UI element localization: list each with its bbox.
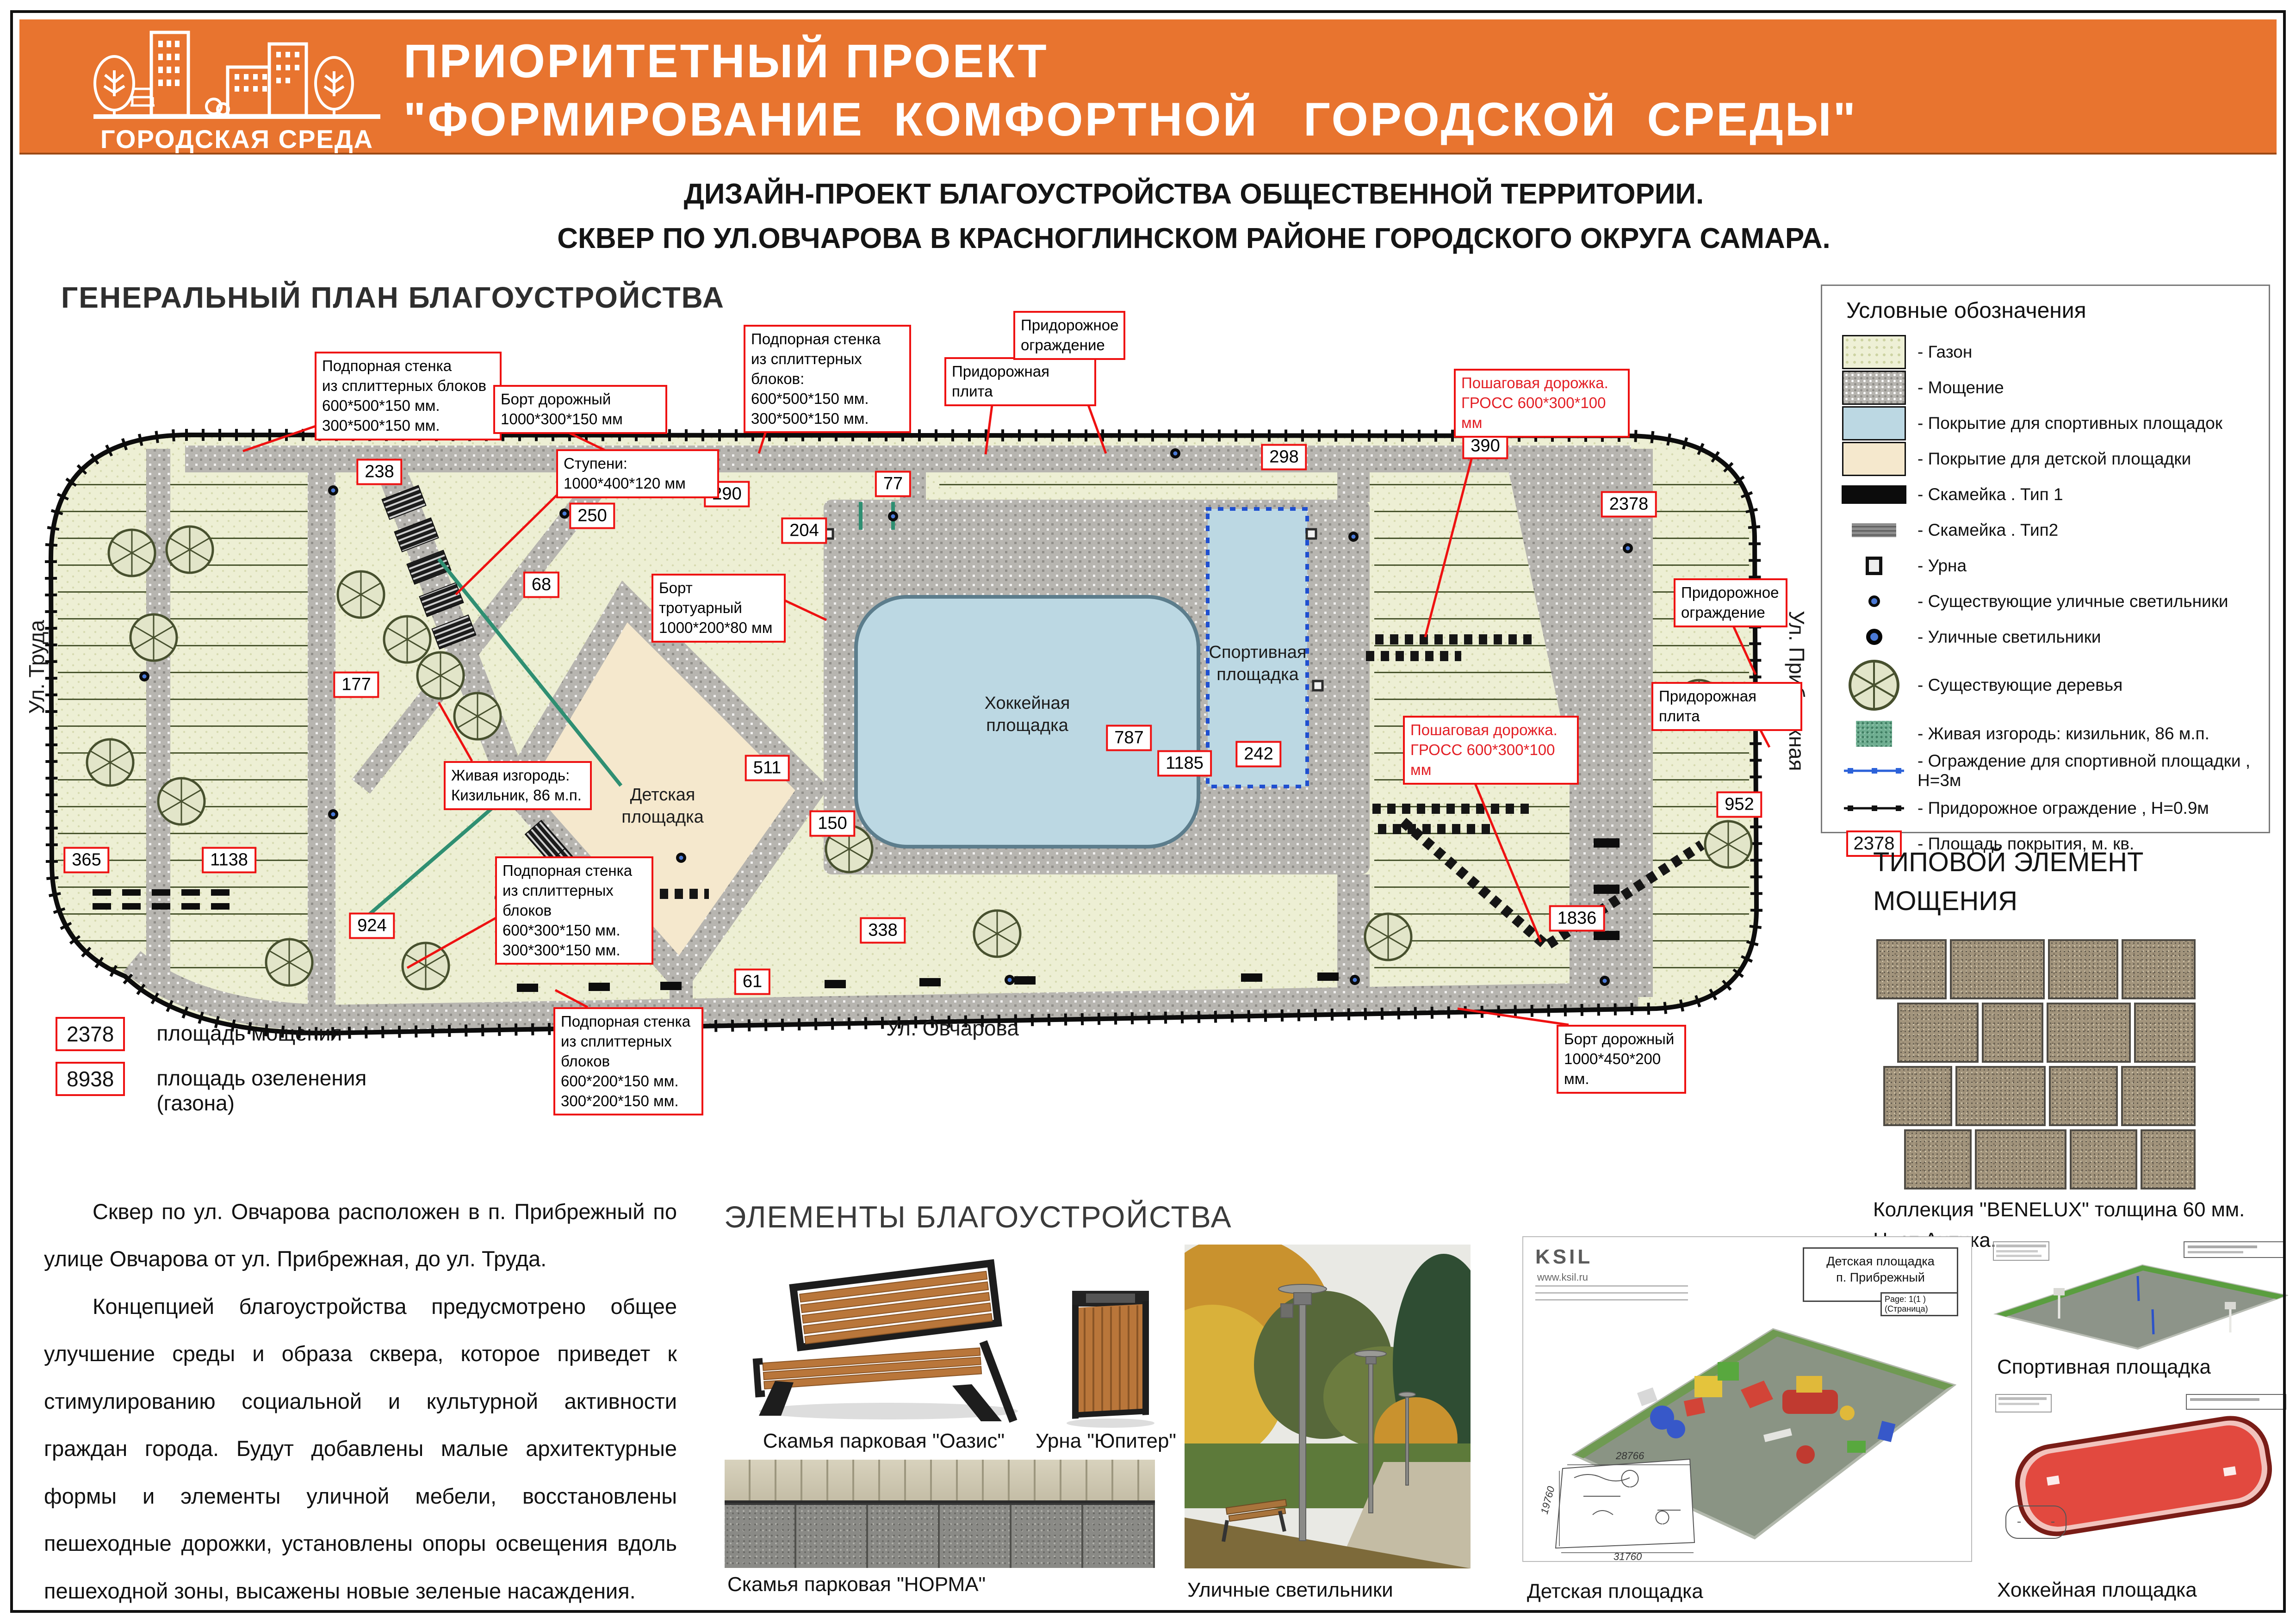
plan-annotation: Пошаговая дорожка. ГРОСС 600*300*100 мм xyxy=(1454,369,1630,438)
poster-title-line1: ПРИОРИТЕТНЫЙ ПРОЕКТ xyxy=(403,34,1049,88)
legend-ln-icon xyxy=(1842,629,1906,645)
paving-tile xyxy=(2121,1066,2196,1126)
legend-item-lawn: - Газон xyxy=(1842,334,2261,370)
legend-item-le: - Существующие уличные светильники xyxy=(1842,583,2261,619)
paving-tile xyxy=(1975,1129,2066,1189)
paving-tile xyxy=(2122,939,2196,999)
plan-annotation: Придорожная плита xyxy=(944,357,1096,406)
sport-area-label: Спортивная xyxy=(1209,643,1307,662)
plan-annotation: Придорожное ограждение xyxy=(1674,578,1787,627)
project-subtitle: ДИЗАЙН-ПРОЕКТ БЛАГОУСТРОЙСТВА ОБЩЕСТВЕНН… xyxy=(486,172,1902,261)
area-badge: 511 xyxy=(745,755,790,781)
paving-tile xyxy=(1897,1003,1979,1063)
area-badge: 1185 xyxy=(1157,750,1212,777)
legend-b1-icon xyxy=(1842,485,1906,504)
logo-title: ГОРОДСКАЯ СРЕДА xyxy=(75,124,399,154)
legend-item-label: - Придорожное ограждение , Н=0.9м xyxy=(1917,799,2209,818)
area-badge: 204 xyxy=(781,518,827,544)
street-lights-caption: Уличные светильники xyxy=(1187,1579,1393,1602)
legend-item-urn: - Урна xyxy=(1842,548,2261,583)
svg-text:площадка: площадка xyxy=(1216,665,1299,684)
bench-norma-image xyxy=(725,1460,1155,1568)
legend-item-fs: - Ограждение для спортивной площадки , Н… xyxy=(1842,751,2261,790)
sport-ground-image xyxy=(1990,1240,2288,1351)
plan-annotation: Пошаговая дорожка. ГРОСС 600*300*100 мм xyxy=(1403,716,1579,785)
area-badge: 1138 xyxy=(202,847,256,873)
area-badge: 787 xyxy=(1106,725,1152,751)
street-label-truda: Ул. Труда xyxy=(24,620,49,714)
description-paragraph-1: Сквер по ул. Овчарова расположен в п. Пр… xyxy=(44,1188,677,1283)
plan-annotation: Живая изгородь: Кизильник, 86 м.п. xyxy=(444,761,592,810)
plan-annotation: Борт дорожный 1000*300*150 мм xyxy=(493,385,667,434)
legend-item-b1: - Скамейка . Тип 1 xyxy=(1842,477,2261,512)
bench-oasis-image xyxy=(731,1258,1036,1425)
svg-text:19760: 19760 xyxy=(1539,1485,1557,1515)
legend-item-label: - Скамейка . Тип 1 xyxy=(1917,485,2063,504)
area-badge: 61 xyxy=(734,969,770,995)
svg-text:28766: 28766 xyxy=(1615,1450,1644,1462)
paving-tile xyxy=(2070,1129,2137,1189)
area-badge: 242 xyxy=(1235,741,1281,768)
area-badge: 238 xyxy=(356,459,402,485)
area-badge: 177 xyxy=(333,672,379,698)
bench-norma-caption: Скамья парковая "НОРМА" xyxy=(727,1573,986,1596)
legend-item-b2: - Скамейка . Тип2 xyxy=(1842,512,2261,548)
legend-kids-icon xyxy=(1842,442,1906,476)
playground-caption: Детская площадка xyxy=(1527,1580,1703,1603)
area-badge: 68 xyxy=(523,572,559,598)
plan-annotation: Борт тротуарный 1000*200*80 мм xyxy=(652,574,786,643)
sport-ground-caption: Спортивная площадка xyxy=(1997,1356,2211,1379)
paving-tile xyxy=(1955,1066,2046,1126)
legend-item-pav: - Мощение xyxy=(1842,370,2261,405)
area-badge: 338 xyxy=(860,917,906,944)
elements-heading: ЭЛЕМЕНТЫ БЛАГОУСТРОЙСТВА xyxy=(724,1199,1232,1234)
project-description: Сквер по ул. Овчарова расположен в п. Пр… xyxy=(44,1188,677,1615)
legend-item-label: - Живая изгородь: кизильник, 86 м.п. xyxy=(1917,724,2209,743)
paving-tile xyxy=(1883,1066,1952,1126)
plan-annotation: Подпорная стенка из сплиттерных блоков 6… xyxy=(315,352,502,440)
area-badge: 952 xyxy=(1716,792,1762,818)
subtitle-line2: СКВЕР ПО УЛ.ОВЧАРОВА В КРАСНОГЛИНСКОМ РА… xyxy=(486,217,1902,261)
legend-item-fr: - Придорожное ограждение , Н=0.9м xyxy=(1842,790,2261,826)
urn-jupiter-caption: Урна "Юпитер" xyxy=(1018,1430,1194,1453)
legend-fr-icon xyxy=(1842,803,1906,814)
paving-tile xyxy=(1904,1129,1972,1189)
playground-blueprint: KSIL www.ksil.ru Детская площадка п. При… xyxy=(1522,1236,1972,1562)
svg-text:площадка: площадка xyxy=(621,807,704,827)
header-banner: ГОРОДСКАЯ СРЕДА ПРИОРИТЕТНЫЙ ПРОЕКТ "ФОР… xyxy=(19,19,2277,155)
area-badge: 365 xyxy=(63,847,109,873)
legend-item-label: - Газон xyxy=(1917,342,1972,362)
area-badge: 250 xyxy=(569,503,615,529)
plan-annotation: Борт дорожный 1000*450*200 мм. xyxy=(1557,1025,1686,1094)
legend-item-label: - Покрытие для детской площадки xyxy=(1917,449,2191,469)
legend-lawn-icon xyxy=(1842,335,1906,369)
legend-pav-icon xyxy=(1842,371,1906,405)
legend-item-kids: - Покрытие для детской площадки xyxy=(1842,441,2261,477)
plan-annotation: Подпорная стенка из сплиттерных блоков 6… xyxy=(495,856,653,965)
street-label-ovcharova: Ул. Овчарова xyxy=(886,1016,1019,1041)
logo: ГОРОДСКАЯ СРЕДА xyxy=(75,28,399,149)
lawn-area-label: площадь озеленения (газона) xyxy=(156,1062,366,1115)
city-skyline-icon xyxy=(75,28,399,125)
poster-title-line2: "ФОРМИРОВАНИЕ КОМФОРТНОЙ ГОРОДСКОЙ СРЕДЫ… xyxy=(403,93,1857,147)
legend-le-icon xyxy=(1842,595,1906,607)
plan-annotation: Подпорная стенка из сплиттерных блоков: … xyxy=(744,325,911,433)
plan-annotation: Ступени: 1000*400*120 мм xyxy=(556,449,719,498)
kids-area-label: Детская xyxy=(630,785,695,805)
street-lights-photo xyxy=(1185,1245,1471,1568)
svg-text:31760: 31760 xyxy=(1613,1551,1642,1561)
paving-area-value: 2378 xyxy=(56,1017,125,1051)
legend-sport-icon xyxy=(1842,406,1906,440)
svg-text:площадка: площадка xyxy=(986,716,1068,735)
paving-tile xyxy=(2141,1129,2196,1189)
hockey-area-label: Хоккейная xyxy=(985,694,1070,713)
legend-hedge-icon xyxy=(1842,721,1906,747)
legend-item-label: - Ограждение для спортивной площадки , Н… xyxy=(1917,751,2261,790)
paving-area-summary: 2378 площадь мощения xyxy=(56,1017,342,1051)
description-paragraph-2: Концепцией благоустройства предусмотрено… xyxy=(44,1283,677,1615)
legend-item-label: - Мощение xyxy=(1917,378,2004,397)
legend-item-ln: - Уличные светильники xyxy=(1842,619,2261,655)
area-badge: 77 xyxy=(875,471,911,497)
legend-item-tree: - Существующие деревья xyxy=(1842,655,2261,716)
plan-annotation: Придорожная плита xyxy=(1651,682,1802,731)
area-badge: 924 xyxy=(349,913,395,939)
legend-item-label: - Скамейка . Тип2 xyxy=(1917,520,2058,540)
paving-tile xyxy=(2048,939,2118,999)
bench-oasis-caption: Скамья парковая "Оазис" xyxy=(731,1430,1036,1453)
area-badge: 298 xyxy=(1261,444,1307,471)
paving-tile xyxy=(2049,1066,2118,1126)
paving-sample-image xyxy=(1872,939,2196,1193)
paving-tile xyxy=(1950,939,2045,999)
paving-tile xyxy=(1982,1003,2043,1063)
plan-annotation: Придорожное ограждение xyxy=(1013,311,1125,360)
legend-fs-icon xyxy=(1842,765,1906,776)
legend-item-label: - Существующие уличные светильники xyxy=(1917,592,2228,611)
subtitle-line1: ДИЗАЙН-ПРОЕКТ БЛАГОУСТРОЙСТВА ОБЩЕСТВЕНН… xyxy=(486,172,1902,217)
area-badge: 1836 xyxy=(1549,905,1605,932)
legend-item-label: - Покрытие для спортивных площадок xyxy=(1917,414,2222,433)
area-badge: 2378 xyxy=(1601,491,1657,518)
legend-title: Условные обозначения xyxy=(1846,298,2086,323)
poster: ГОРОДСКАЯ СРЕДА ПРИОРИТЕТНЫЙ ПРОЕКТ "ФОР… xyxy=(0,0,2296,1623)
paving-tile xyxy=(2047,1003,2131,1063)
plan-annotation: Подпорная стенка из сплиттерных блоков 6… xyxy=(553,1007,703,1115)
paving-area-label: площадь мощения xyxy=(156,1017,342,1046)
legend-urn-icon xyxy=(1842,557,1906,575)
urn-jupiter-image xyxy=(1043,1277,1173,1430)
legend-item-sport: - Покрытие для спортивных площадок xyxy=(1842,405,2261,441)
area-badge: 150 xyxy=(809,811,855,837)
legend-item-label: - Урна xyxy=(1917,556,1967,576)
legend-b2-icon xyxy=(1842,523,1906,537)
legend-item-label: - Уличные светильники xyxy=(1917,627,2101,647)
legend-item-hedge: - Живая изгородь: кизильник, 86 м.п. xyxy=(1842,716,2261,751)
hockey-rink-caption: Хоккейная площадка xyxy=(1997,1579,2197,1602)
hockey-rink-image xyxy=(1992,1393,2290,1550)
paving-tile xyxy=(2134,1003,2196,1063)
lawn-area-value: 8938 xyxy=(56,1062,125,1096)
lawn-area-summary: 8938 площадь озеленения (газона) xyxy=(56,1062,366,1115)
legend-panel: Условные обозначения - Газон- Мощение- П… xyxy=(1821,285,2270,833)
paving-sample-title: ТИПОВОЙ ЭЛЕМЕНТ МОЩЕНИЯ xyxy=(1873,843,2143,921)
legend-tree-icon xyxy=(1842,657,1906,713)
legend-item-label: - Существующие деревья xyxy=(1917,675,2122,695)
paving-tile xyxy=(1876,939,1947,999)
